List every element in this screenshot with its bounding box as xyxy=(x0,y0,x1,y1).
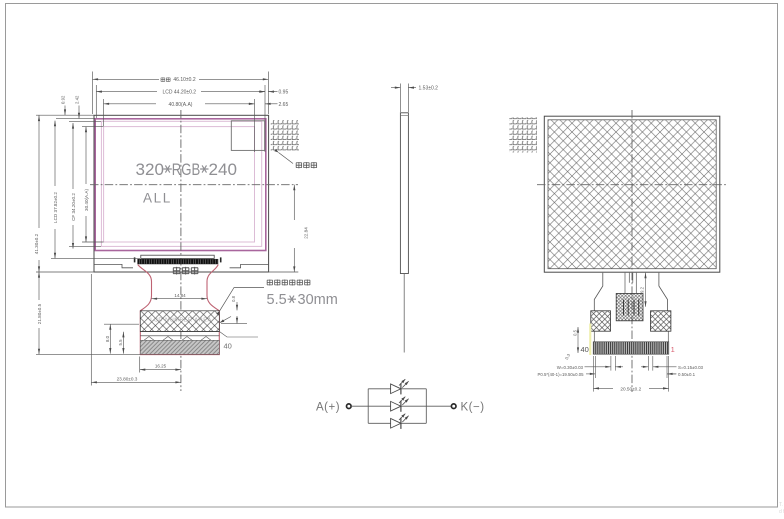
svg-text:T.: T. xyxy=(779,502,783,508)
svg-text:CF 34.20±0.2: CF 34.20±0.2 xyxy=(71,193,76,221)
svg-text:5.5: 5.5 xyxy=(118,339,123,346)
svg-text:LCD 37.82±0.2: LCD 37.82±0.2 xyxy=(53,192,58,223)
svg-text:16.25: 16.25 xyxy=(155,364,167,369)
svg-text:2.65: 2.65 xyxy=(279,102,289,108)
svg-text:40: 40 xyxy=(581,345,589,354)
svg-text:W=0.30±0.03: W=0.30±0.03 xyxy=(557,365,584,370)
svg-text:240: 240 xyxy=(209,160,238,179)
svg-text:22.84: 22.84 xyxy=(303,227,308,239)
svg-text:0.95: 0.95 xyxy=(279,90,289,96)
svg-text:23.80±0.3: 23.80±0.3 xyxy=(117,376,138,381)
svg-text:LCD 44.20±0.2: LCD 44.20±0.2 xyxy=(162,90,196,96)
svg-text:RGB: RGB xyxy=(172,160,201,179)
svg-text:40.80(A.A): 40.80(A.A) xyxy=(169,102,193,108)
svg-text:21.80±0.5: 21.80±0.5 xyxy=(37,303,42,324)
svg-text:0.5: 0.5 xyxy=(572,329,577,335)
svg-text:2.42: 2.42 xyxy=(75,95,80,104)
svg-text:46.10±0.2: 46.10±0.2 xyxy=(173,77,195,83)
svg-text:1.53±0.2: 1.53±0.2 xyxy=(419,86,439,92)
svg-text:d f: d f xyxy=(779,509,784,515)
svg-text:320: 320 xyxy=(136,160,165,179)
svg-text:9.2: 9.2 xyxy=(640,286,645,292)
svg-text:S=0.15±0.03: S=0.15±0.03 xyxy=(678,365,704,370)
svg-text:P0.5*(40-1)=19.50±0.05: P0.5*(40-1)=19.50±0.05 xyxy=(538,372,585,377)
svg-text:K(−): K(−) xyxy=(461,402,485,414)
svg-text:14.84: 14.84 xyxy=(174,293,186,298)
svg-text:8.0: 8.0 xyxy=(105,335,110,342)
svg-text:30mm: 30mm xyxy=(298,292,338,308)
svg-text:40: 40 xyxy=(224,342,232,351)
svg-text:A(+): A(+) xyxy=(316,402,340,414)
svg-text:1: 1 xyxy=(671,345,675,354)
svg-text:41.30±0.2: 41.30±0.2 xyxy=(34,233,39,254)
svg-text:5.5: 5.5 xyxy=(267,292,287,308)
svg-text:20.50±0.2: 20.50±0.2 xyxy=(620,386,641,391)
svg-text:0.8: 0.8 xyxy=(231,295,236,301)
svg-text:0.50±0.1: 0.50±0.1 xyxy=(678,372,696,377)
svg-text:ALL: ALL xyxy=(143,191,172,206)
svg-text:0.92: 0.92 xyxy=(61,95,66,104)
svg-text:LCD NUMBER AREA: LCD NUMBER AREA xyxy=(150,318,212,324)
svg-text:30.40(A.A): 30.40(A.A) xyxy=(84,189,89,211)
